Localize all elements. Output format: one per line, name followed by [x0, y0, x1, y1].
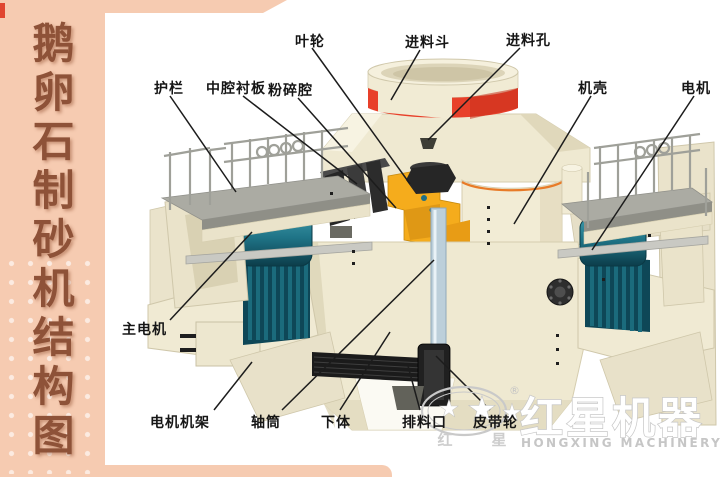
label-feed-hole: 进料孔	[506, 30, 551, 50]
corner-accent-mark	[0, 3, 5, 18]
logo-registered-mark: ®	[509, 384, 520, 397]
structure-diagram-page: ★ ★ ★ ® 红 星 红星机器 HONGXING MACHINERY 叶轮 进…	[0, 0, 720, 477]
label-main-motor: 主电机	[122, 319, 167, 339]
bottom-border-bar	[90, 465, 392, 477]
banner-title: 鹅卵石制砂机结构图	[29, 21, 71, 462]
shaft-tube-part	[431, 208, 446, 358]
side-banner: 鹅卵石制砂机结构图	[0, 0, 105, 477]
label-belt-pulley: 皮带轮	[473, 412, 518, 432]
logo-seal-left: 红	[437, 431, 452, 449]
label-crushing-chamber: 粉碎腔	[268, 80, 313, 100]
logo-seal-right: 星	[491, 431, 506, 449]
label-lower-body: 下体	[321, 412, 351, 432]
label-discharge-port: 排料口	[402, 412, 447, 432]
label-cavity-liner: 中腔衬板	[206, 78, 266, 98]
label-feed-hopper: 进料斗	[405, 32, 450, 52]
label-casing: 机壳	[578, 78, 608, 98]
label-guardrail: 护栏	[154, 78, 184, 98]
brand-logo: ★ ★ ★ ® 红 星 红星机器 HONGXING MACHINERY	[422, 384, 720, 450]
label-motor: 电机	[681, 78, 711, 98]
label-impeller: 叶轮	[295, 31, 325, 51]
logo-brand-en: HONGXING MACHINERY	[521, 436, 720, 450]
feed-hopper-part	[368, 59, 518, 119]
label-motor-frame: 电机机架	[150, 412, 210, 432]
machine-illustration: ★ ★ ★ ® 红 星 红星机器 HONGXING MACHINERY	[0, 0, 720, 477]
label-shaft-tube: 轴筒	[251, 412, 281, 432]
